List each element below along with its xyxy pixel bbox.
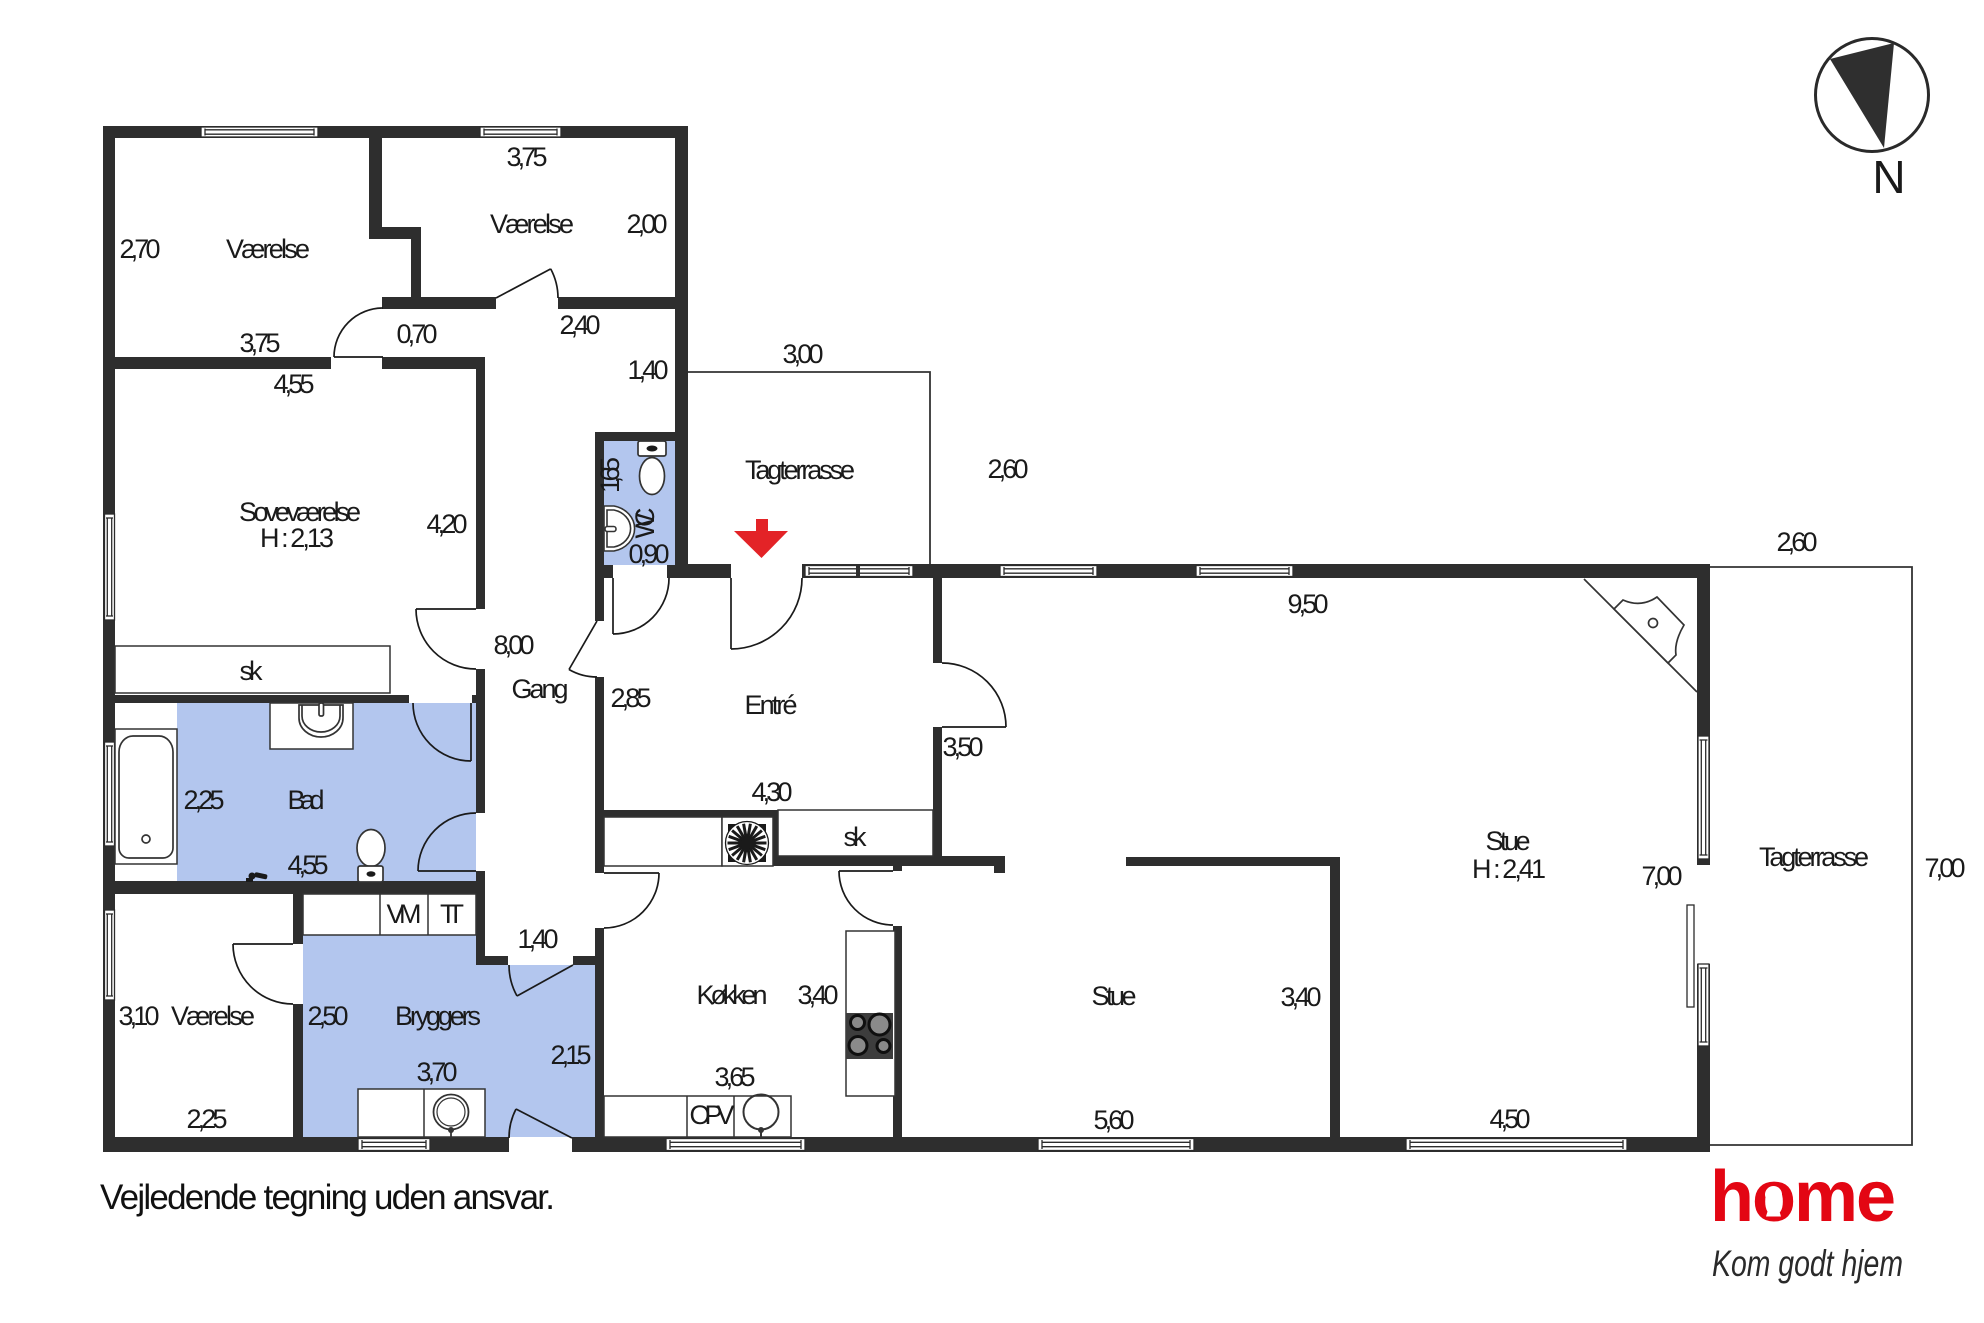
svg-text:4,55: 4,55 bbox=[274, 369, 315, 399]
svg-text:0,70: 0,70 bbox=[397, 319, 438, 349]
svg-text:Stue: Stue bbox=[1092, 981, 1137, 1011]
svg-text:Tagterrasse: Tagterrasse bbox=[1759, 842, 1869, 872]
svg-text:5,60: 5,60 bbox=[1094, 1105, 1135, 1135]
svg-text:4,20: 4,20 bbox=[427, 509, 468, 539]
svg-text:Stue: Stue bbox=[1486, 826, 1531, 856]
svg-text:2,50: 2,50 bbox=[308, 1001, 349, 1031]
svg-text:Værelse: Værelse bbox=[226, 234, 310, 264]
svg-text:4,30: 4,30 bbox=[752, 777, 793, 807]
svg-text:2,60: 2,60 bbox=[988, 454, 1029, 484]
svg-text:VM: VM bbox=[387, 899, 422, 929]
svg-text:3,40: 3,40 bbox=[798, 980, 839, 1010]
svg-text:N: N bbox=[1872, 151, 1905, 203]
svg-text:Gang: Gang bbox=[512, 674, 569, 704]
svg-text:Værelse: Værelse bbox=[171, 1001, 255, 1031]
svg-text:1,40: 1,40 bbox=[518, 924, 559, 954]
svg-text:2,25: 2,25 bbox=[187, 1104, 228, 1134]
svg-text:Entré: Entré bbox=[745, 690, 798, 720]
svg-text:3,00: 3,00 bbox=[783, 339, 824, 369]
svg-text:3,70: 3,70 bbox=[417, 1057, 458, 1087]
svg-text:2,00: 2,00 bbox=[627, 209, 668, 239]
svg-text:2,40: 2,40 bbox=[560, 310, 601, 340]
svg-text:3,50: 3,50 bbox=[943, 732, 984, 762]
svg-text:0,90: 0,90 bbox=[629, 539, 670, 569]
svg-text:OPV: OPV bbox=[690, 1100, 735, 1130]
svg-text:sk: sk bbox=[844, 822, 868, 852]
svg-text:4,55: 4,55 bbox=[288, 850, 329, 880]
svg-text:3,40: 3,40 bbox=[1281, 982, 1322, 1012]
svg-text:Vejledende tegning uden ansvar: Vejledende tegning uden ansvar. bbox=[100, 1178, 555, 1217]
svg-text:Bad: Bad bbox=[288, 785, 325, 815]
svg-text:3,75: 3,75 bbox=[507, 142, 548, 172]
svg-text:2,85: 2,85 bbox=[611, 683, 652, 713]
svg-text:9,50: 9,50 bbox=[1288, 589, 1329, 619]
svg-text:Værelse: Værelse bbox=[490, 209, 574, 239]
svg-text:Køkken: Køkken bbox=[697, 980, 768, 1010]
svg-text:sk: sk bbox=[240, 656, 264, 686]
svg-text:H : 2,41: H : 2,41 bbox=[1472, 854, 1546, 884]
svg-text:7,00: 7,00 bbox=[1642, 861, 1683, 891]
svg-text:1,40: 1,40 bbox=[628, 355, 669, 385]
svg-text:H : 2,13: H : 2,13 bbox=[260, 523, 334, 553]
svg-text:home: home bbox=[1710, 1157, 1894, 1237]
svg-text:Tagterrasse: Tagterrasse bbox=[745, 455, 855, 485]
svg-text:1,65: 1,65 bbox=[595, 457, 625, 493]
svg-text:2,25: 2,25 bbox=[184, 785, 225, 815]
svg-text:Kom godt hjem: Kom godt hjem bbox=[1712, 1243, 1903, 1284]
svg-text:TT: TT bbox=[440, 899, 464, 929]
svg-text:3,75: 3,75 bbox=[240, 328, 281, 358]
svg-text:7,00: 7,00 bbox=[1925, 853, 1966, 883]
svg-text:WC: WC bbox=[630, 508, 660, 539]
svg-text:Bryggers: Bryggers bbox=[395, 1001, 481, 1031]
svg-text:8,00: 8,00 bbox=[494, 630, 535, 660]
svg-text:2,15: 2,15 bbox=[551, 1040, 592, 1070]
svg-text:4,50: 4,50 bbox=[1490, 1104, 1531, 1134]
svg-text:2,70: 2,70 bbox=[120, 234, 161, 264]
svg-text:2,60: 2,60 bbox=[1777, 527, 1818, 557]
svg-text:3,10: 3,10 bbox=[119, 1001, 160, 1031]
svg-text:3,65: 3,65 bbox=[715, 1062, 756, 1092]
